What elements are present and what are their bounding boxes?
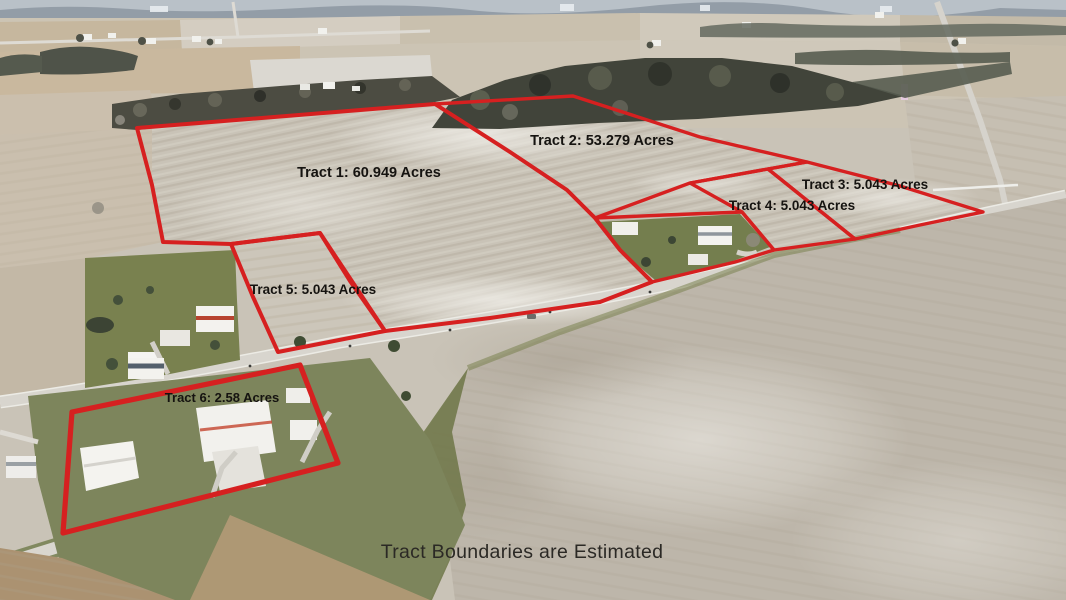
tract6-label: Tract 6: 2.58 Acres [165,390,279,405]
tract3-label: Tract 3: 5.043 Acres [802,177,928,192]
lot-outbuilding [612,222,638,235]
bare-tree [92,202,104,214]
tract4-label: Tract 4: 5.043 Acres [729,198,855,213]
lot-driveway [737,252,757,254]
aerial-scene: Tract 1: 60.949 Acres Tract 2: 53.279 Ac… [0,0,1066,600]
annotated-aerial-photo: Tract 1: 60.949 Acres Tract 2: 53.279 Ac… [0,0,1066,600]
shed-west [160,330,190,346]
tract6-shed1 [286,388,310,403]
bare-tree-lot [746,233,760,247]
tract1-label: Tract 1: 60.949 Acres [297,165,441,181]
lot-shed [688,254,708,265]
disclaimer-caption: Tract Boundaries are Estimated [381,541,664,563]
house-far-left [6,456,36,478]
tract2-label: Tract 2: 53.279 Acres [530,133,674,149]
driveway-far-left [0,432,38,442]
tract5-label: Tract 5: 5.043 Acres [250,282,376,297]
